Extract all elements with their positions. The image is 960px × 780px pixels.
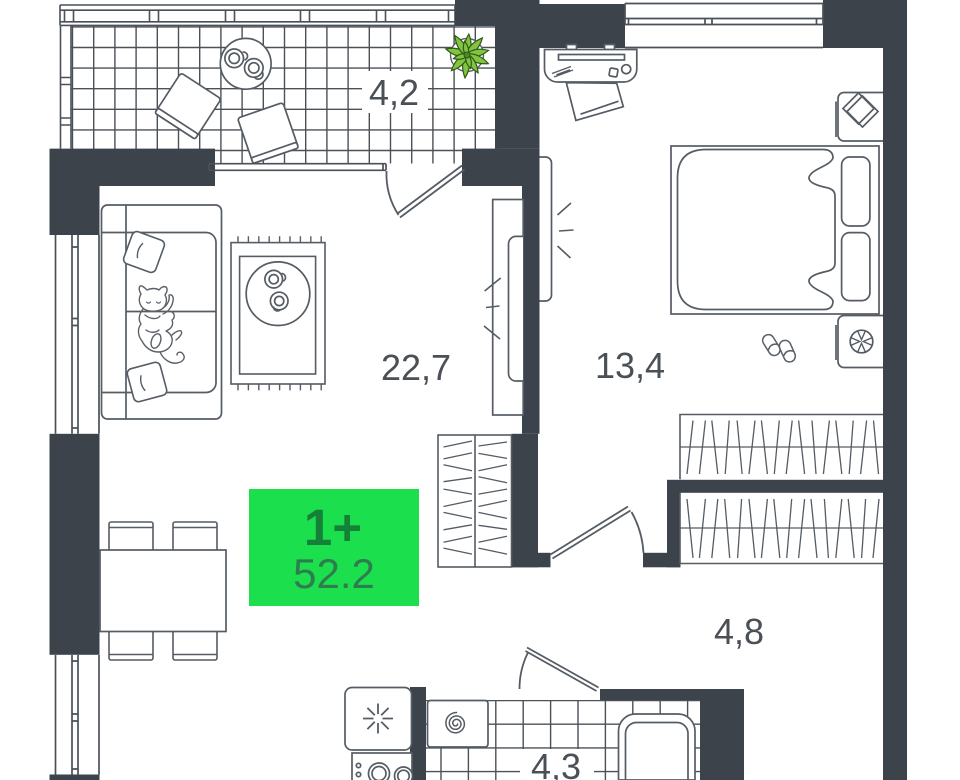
svg-text:13,4: 13,4 xyxy=(595,345,665,386)
svg-text:4,2: 4,2 xyxy=(369,72,419,113)
svg-text:52.2: 52.2 xyxy=(293,550,375,597)
svg-text:4,8: 4,8 xyxy=(714,611,764,652)
svg-text:22,7: 22,7 xyxy=(381,347,451,388)
svg-text:4,3: 4,3 xyxy=(531,746,581,780)
svg-text:1+: 1+ xyxy=(304,499,362,556)
